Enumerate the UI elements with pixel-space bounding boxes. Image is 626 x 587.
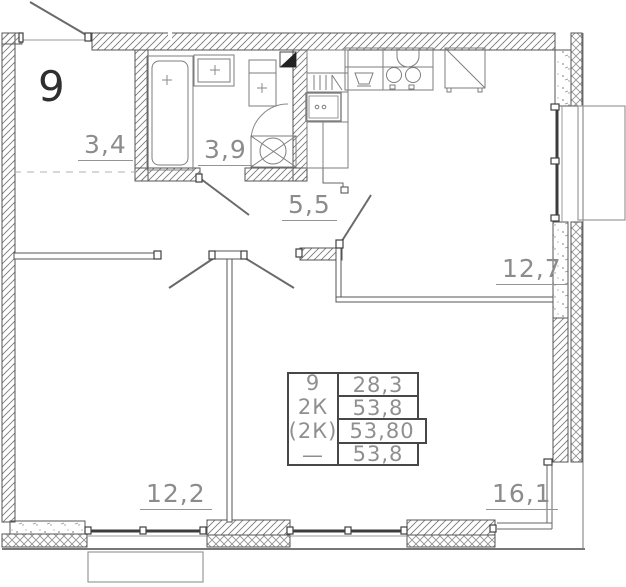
kitchen-sink-icon [397,48,419,67]
bathroom-door-leaf [201,179,249,215]
cooker-hood-icon [355,73,373,86]
stamp-dash: — [289,443,337,467]
rack-icon [314,75,342,90]
bottom-wall-pier1-insulation [207,535,290,547]
fridge-corner-unit [445,48,485,92]
bottom-wall-left-insulation [2,534,87,547]
partition-rooms-vertical [227,259,232,522]
sink [194,55,234,86]
stamp-type-alt: (2К) [289,419,337,443]
stamp-total-area-with-balcony: 53,80 [337,418,427,444]
room-area-bathroom: 3,9 [198,137,253,166]
room-area-inner-hall: 5,5 [282,192,337,221]
toilet [249,60,276,106]
stamp-table-left-cell: 9 2К (2К) — [287,372,339,466]
stamp-apartment-number: 9 [289,371,337,395]
room-area-entry-hall: 3,4 [78,132,133,161]
right-wall-insulation-mid [571,222,582,462]
kitchen-fixtures [306,48,485,168]
double-door-right-leaf [245,258,294,288]
balcony-bottom [88,552,203,582]
room-area-room-right: 16,1 [486,481,558,510]
bottom-wall-pier2-insulation [407,535,495,547]
bathtub [147,56,193,170]
apartment-number: 9 [38,66,65,108]
bottom-wall-pier2 [407,520,495,535]
room-area-room-left: 12,2 [140,481,212,510]
right-wall-insulation-top [571,33,582,106]
balcony-right [578,106,625,220]
interior-walls [14,50,553,522]
cabinet-doors [306,93,341,121]
stamp-total-area: 53,8 [337,395,419,420]
stamp-living-area: 28,3 [337,372,419,397]
stamp-type: 2К [289,395,337,419]
double-door-left-leaf [169,258,214,288]
floor-plan: 9 3,4 3,9 5,5 12,7 12,2 16,1 9 2К (2К) —… [0,0,626,587]
washing-machine [251,136,296,167]
bathroom-door-arc [251,104,288,141]
kitchen-cabinet-column [306,50,348,168]
top-wall [92,33,555,50]
kitchen-column-stub [323,168,343,191]
kitchen-column-stub-cap [341,187,348,193]
left-wall [2,33,15,522]
partition-hall-room-left [14,253,160,259]
bathroom-left-wall [135,50,148,181]
right-wall-concrete-top [555,50,571,106]
vent-shaft-icon [280,52,296,67]
stamp-area-final: 53,8 [337,442,419,466]
room-area-kitchen-living: 12,7 [496,256,568,285]
partition-kitchen-room-right [336,297,553,302]
bathroom-right-wall [293,50,307,181]
entry-door-leaf [30,2,88,36]
top-wall-joint [168,32,172,40]
partition-kitchen-vertical [336,248,341,297]
bathroom-bottom-wall-right [245,168,307,181]
bottom-wall-left-concrete [10,521,85,534]
right-wall-brick [553,318,568,462]
kitchen-door-leaf [340,195,371,244]
stove-icon [387,68,421,90]
bottom-wall-pier1 [207,520,290,535]
